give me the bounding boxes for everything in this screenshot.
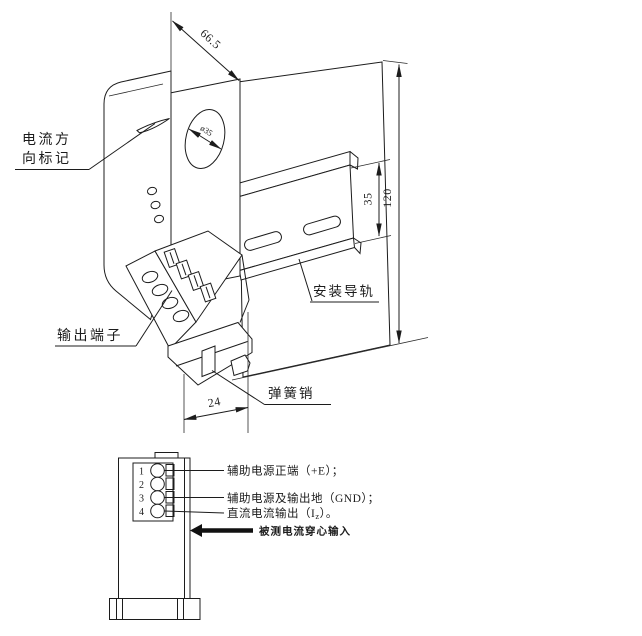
dim-foot-width-text: 24 bbox=[207, 394, 222, 410]
measured-current-input-label: 被测电流穿心输入 bbox=[259, 525, 351, 538]
terminal-number-2: 2 bbox=[139, 480, 144, 491]
dim-rail-height-text: 35 bbox=[361, 193, 375, 206]
terminal-screw-3 bbox=[151, 491, 165, 505]
terminal-number-4: 4 bbox=[139, 507, 144, 518]
output-terminal-label: 输出端子 bbox=[57, 328, 123, 344]
terminal-screw-4 bbox=[151, 504, 165, 518]
callout-spring-pin: 弹簧销 bbox=[212, 371, 331, 405]
current-direction-label-line2: 向标记 bbox=[22, 151, 72, 167]
top-tab bbox=[155, 453, 178, 459]
isometric-view: 66.5 ø35 35 120 24 bbox=[15, 12, 428, 433]
dc-output-label: 直流电流输出（Iz）。 bbox=[227, 506, 338, 521]
spring-pin-slot bbox=[202, 346, 215, 377]
dim-top-width-text: 66.5 bbox=[197, 26, 223, 52]
dim-overall-height-text: 120 bbox=[380, 188, 394, 208]
aux-power-positive-label: 辅助电源正端（+E）； bbox=[227, 464, 344, 478]
terminal-screw-1 bbox=[151, 464, 165, 478]
spring-pin-label: 弹簧销 bbox=[268, 386, 315, 401]
current-direction-label-line1: 电流方 bbox=[22, 132, 72, 148]
drawing-svg: 66.5 ø35 35 120 24 bbox=[0, 0, 642, 636]
base-clamp bbox=[110, 599, 201, 620]
front-view-terminal-block: 1 2 3 4 bbox=[133, 463, 174, 521]
technical-drawing-page: 66.5 ø35 35 120 24 bbox=[0, 0, 642, 636]
front-view-annotations: 辅助电源正端（+E）； 辅助电源及输出地（GND）； 直流电流输出（Iz）。 被… bbox=[165, 464, 380, 538]
front-view: 1 2 3 4 辅助电源正端（+E）； 辅助电源及输出地（GND）； 直流电流输… bbox=[110, 453, 380, 620]
mounting-rail-label: 安装导轨 bbox=[313, 284, 375, 299]
measured-current-arrow bbox=[190, 524, 253, 537]
terminal-screw-2 bbox=[151, 477, 165, 491]
terminal-number-1: 1 bbox=[139, 467, 144, 478]
aux-power-ground-label: 辅助电源及输出地（GND）； bbox=[227, 491, 380, 505]
terminal-number-3: 3 bbox=[139, 494, 144, 505]
